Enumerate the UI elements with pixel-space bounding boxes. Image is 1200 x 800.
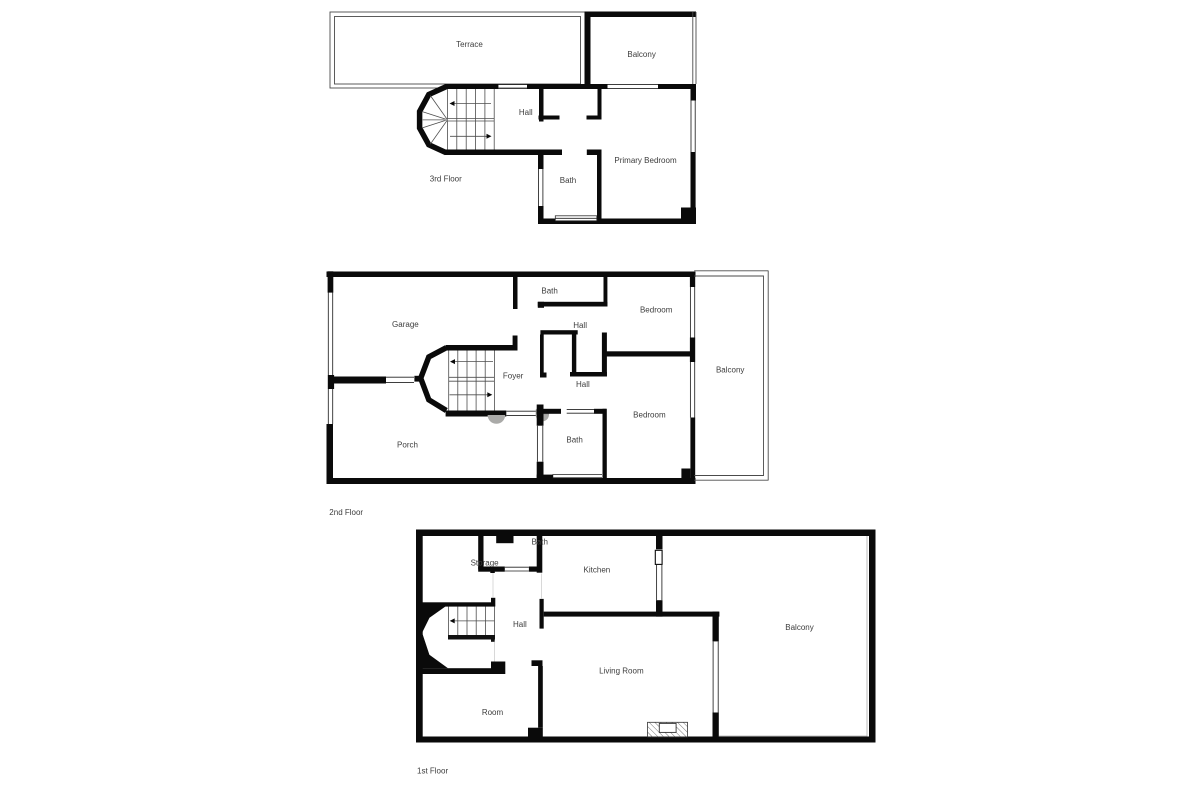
svg-text:Primary Bedroom: Primary Bedroom <box>614 156 677 165</box>
svg-text:Bath: Bath <box>560 176 576 185</box>
svg-text:Storage: Storage <box>471 558 500 567</box>
svg-text:Foyer: Foyer <box>503 371 524 380</box>
svg-text:1st Floor: 1st Floor <box>417 767 448 776</box>
svg-text:Hall: Hall <box>573 321 587 330</box>
svg-text:Bath: Bath <box>531 537 547 546</box>
svg-text:Balcony: Balcony <box>716 366 744 375</box>
svg-text:Hall: Hall <box>519 108 533 117</box>
svg-text:Kitchen: Kitchen <box>584 565 611 574</box>
svg-text:Living Room: Living Room <box>599 667 644 676</box>
svg-text:Balcony: Balcony <box>785 623 813 632</box>
svg-text:Hall: Hall <box>576 380 590 389</box>
svg-text:Bedroom: Bedroom <box>640 306 673 315</box>
svg-text:Hall: Hall <box>513 620 527 629</box>
svg-text:Balcony: Balcony <box>627 50 655 59</box>
svg-text:Bath: Bath <box>541 286 557 295</box>
svg-text:Room: Room <box>482 708 504 717</box>
svg-text:Bath: Bath <box>566 435 582 444</box>
svg-text:Garage: Garage <box>392 320 419 329</box>
svg-text:Terrace: Terrace <box>456 40 483 49</box>
svg-text:2nd Floor: 2nd Floor <box>329 508 363 517</box>
svg-text:Porch: Porch <box>397 440 418 449</box>
svg-text:3rd Floor: 3rd Floor <box>430 174 462 183</box>
svg-text:Bedroom: Bedroom <box>633 411 666 420</box>
